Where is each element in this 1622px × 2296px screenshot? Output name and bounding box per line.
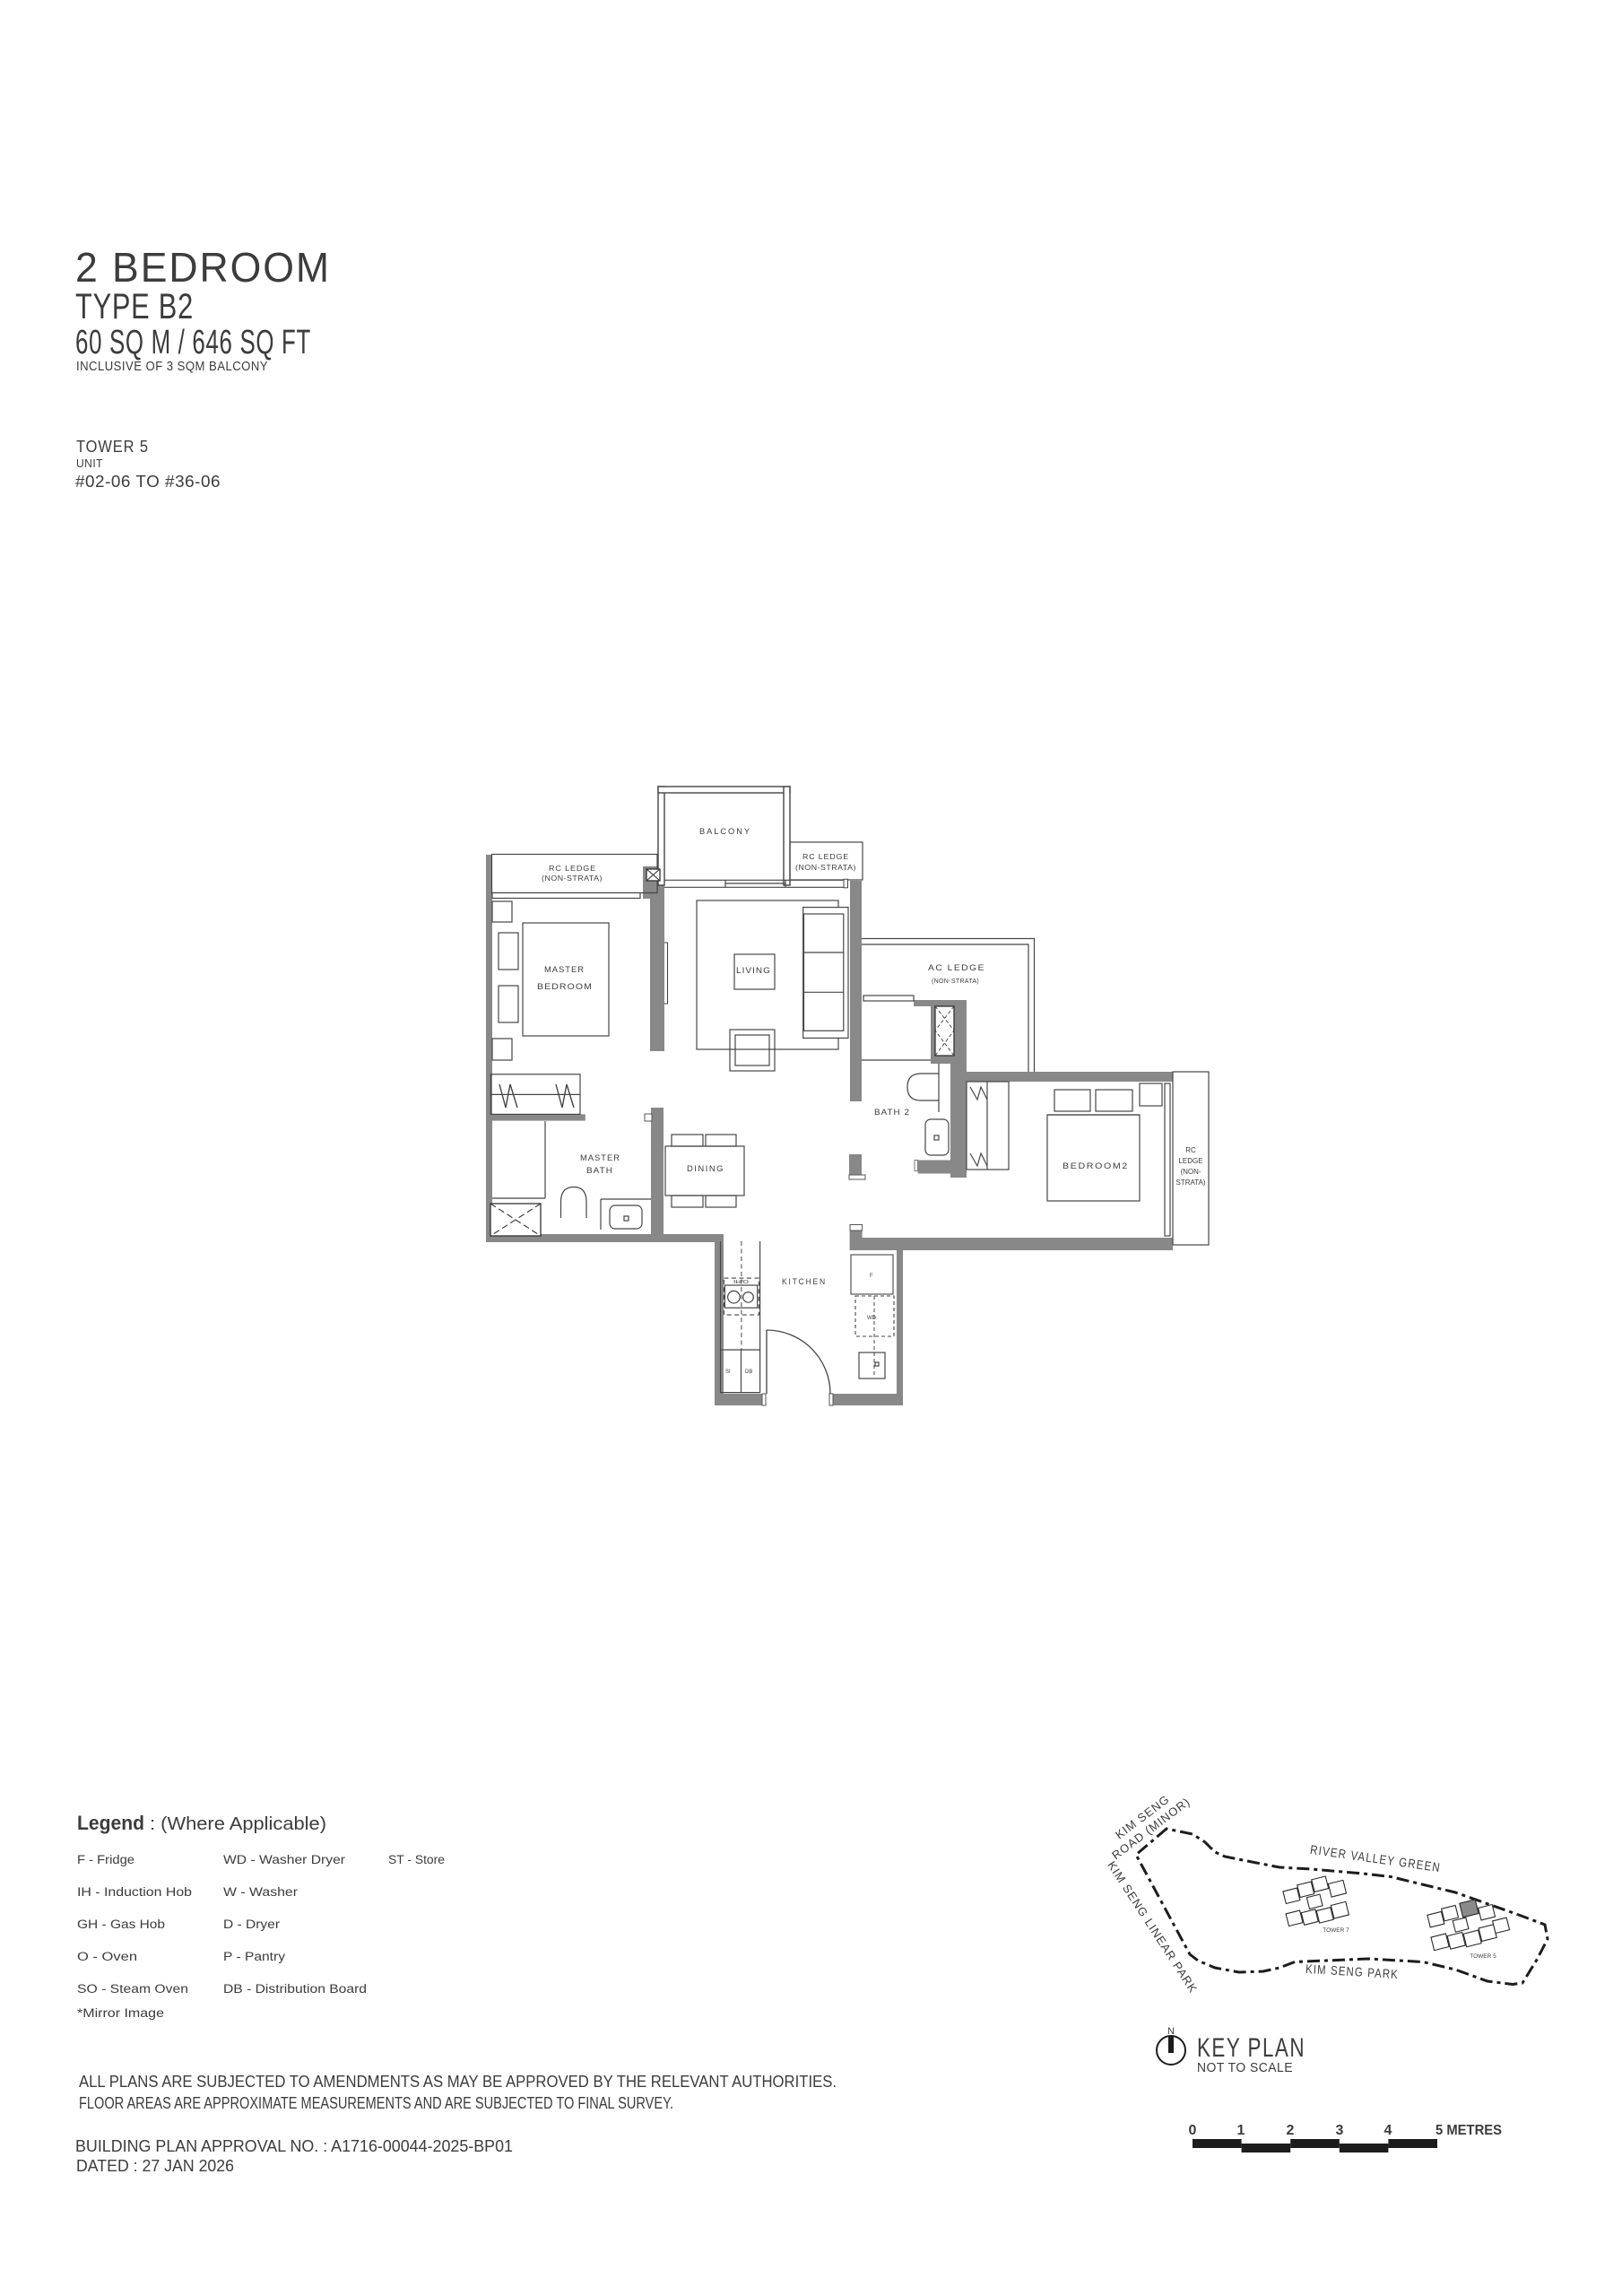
svg-text:F: F bbox=[870, 1274, 873, 1279]
svg-text:P - Pantry: P - Pantry bbox=[223, 1950, 285, 1963]
svg-text:BUILDING PLAN APPROVAL NO. : A: BUILDING PLAN APPROVAL NO. : A1716-00044… bbox=[75, 2137, 513, 2155]
svg-text:WD - Washer Dryer: WD - Washer Dryer bbox=[223, 1853, 346, 1866]
svg-text:(NON-STRATA): (NON-STRATA) bbox=[795, 863, 856, 872]
svg-text:MASTER: MASTER bbox=[544, 965, 585, 975]
svg-text:1: 1 bbox=[1237, 2123, 1245, 2138]
svg-text:ALL PLANS ARE SUBJECTED TO AME: ALL PLANS ARE SUBJECTED TO AMENDMENTS AS… bbox=[79, 2073, 837, 2091]
svg-text:BATH 2: BATH 2 bbox=[874, 1108, 910, 1118]
svg-text:DATED : 27 JAN 2026: DATED : 27 JAN 2026 bbox=[76, 2157, 234, 2175]
svg-text:MASTER: MASTER bbox=[580, 1153, 620, 1163]
svg-text:WD: WD bbox=[867, 1316, 877, 1321]
svg-text:IH/O: IH/O bbox=[733, 1280, 750, 1285]
svg-text:(NON-STRATA): (NON-STRATA) bbox=[542, 874, 603, 883]
svg-text:AC LEDGE: AC LEDGE bbox=[928, 963, 985, 973]
svg-text:3: 3 bbox=[1336, 2123, 1344, 2138]
svg-text:NOT TO SCALE: NOT TO SCALE bbox=[1197, 2061, 1293, 2075]
svg-text:5 METRES: 5 METRES bbox=[1436, 2123, 1502, 2138]
svg-text:GH - Gas Hob: GH - Gas Hob bbox=[77, 1918, 165, 1931]
svg-text:(NON-: (NON- bbox=[1180, 1168, 1201, 1176]
svg-text:D - Dryer: D - Dryer bbox=[223, 1918, 281, 1931]
svg-text:*Mirror Image: *Mirror Image bbox=[77, 2006, 164, 2020]
svg-text:DB: DB bbox=[745, 1370, 752, 1375]
svg-text:: (Where Applicable): : (Where Applicable) bbox=[150, 1814, 326, 1834]
svg-text:KEY PLAN: KEY PLAN bbox=[1197, 2033, 1305, 2063]
svg-text:O - Oven: O - Oven bbox=[77, 1950, 137, 1963]
svg-text:IH - Induction Hob: IH - Induction Hob bbox=[77, 1885, 192, 1899]
svg-text:DINING: DINING bbox=[687, 1164, 724, 1174]
svg-text:TOWER 5: TOWER 5 bbox=[1470, 1953, 1496, 1960]
svg-text:BEDROOM2: BEDROOM2 bbox=[1063, 1161, 1129, 1171]
svg-text:TOWER 7: TOWER 7 bbox=[1323, 1927, 1349, 1934]
svg-text:60 SQ M / 646 SQ FT: 60 SQ M / 646 SQ FT bbox=[75, 324, 311, 361]
svg-text:N: N bbox=[1167, 2026, 1175, 2037]
svg-text:LEDGE: LEDGE bbox=[1178, 1157, 1202, 1165]
svg-text:2 BEDROOM: 2 BEDROOM bbox=[75, 244, 331, 291]
svg-text:2: 2 bbox=[1287, 2123, 1295, 2138]
svg-text:UNIT: UNIT bbox=[76, 457, 103, 470]
svg-text:DB - Distribution Board: DB - Distribution Board bbox=[223, 1982, 367, 1996]
svg-text:RC: RC bbox=[1185, 1146, 1196, 1154]
svg-text:4: 4 bbox=[1384, 2123, 1392, 2138]
svg-text:F - Fridge: F - Fridge bbox=[77, 1853, 134, 1866]
svg-text:ST - Store: ST - Store bbox=[388, 1853, 445, 1866]
svg-text:#02-06 TO #36-06: #02-06 TO #36-06 bbox=[75, 473, 221, 491]
svg-text:BATH: BATH bbox=[586, 1166, 613, 1176]
svg-text:INCLUSIVE OF 3 SQM BALCONY: INCLUSIVE OF 3 SQM BALCONY bbox=[76, 360, 268, 374]
svg-text:BEDROOM: BEDROOM bbox=[537, 982, 593, 992]
svg-text:W - Washer: W - Washer bbox=[223, 1885, 299, 1899]
svg-text:STRATA): STRATA) bbox=[1175, 1178, 1205, 1187]
svg-text:LIVING: LIVING bbox=[736, 966, 771, 976]
svg-text:(NON-STRATA): (NON-STRATA) bbox=[932, 978, 979, 985]
svg-text:KITCHEN: KITCHEN bbox=[782, 1277, 827, 1287]
svg-text:TYPE B2: TYPE B2 bbox=[75, 287, 194, 326]
svg-text:TOWER 5: TOWER 5 bbox=[76, 438, 149, 456]
svg-text:SI: SI bbox=[725, 1370, 731, 1375]
svg-text:SO - Steam Oven: SO - Steam Oven bbox=[77, 1982, 188, 1996]
svg-text:0: 0 bbox=[1189, 2123, 1197, 2138]
svg-text:RC LEDGE: RC LEDGE bbox=[549, 864, 596, 873]
svg-text:FLOOR AREAS ARE APPROXIMATE ME: FLOOR AREAS ARE APPROXIMATE MEASUREMENTS… bbox=[79, 2094, 673, 2112]
svg-text:RC LEDGE: RC LEDGE bbox=[802, 852, 849, 861]
svg-text:BALCONY: BALCONY bbox=[699, 827, 751, 837]
svg-text:Legend: Legend bbox=[77, 1812, 144, 1834]
